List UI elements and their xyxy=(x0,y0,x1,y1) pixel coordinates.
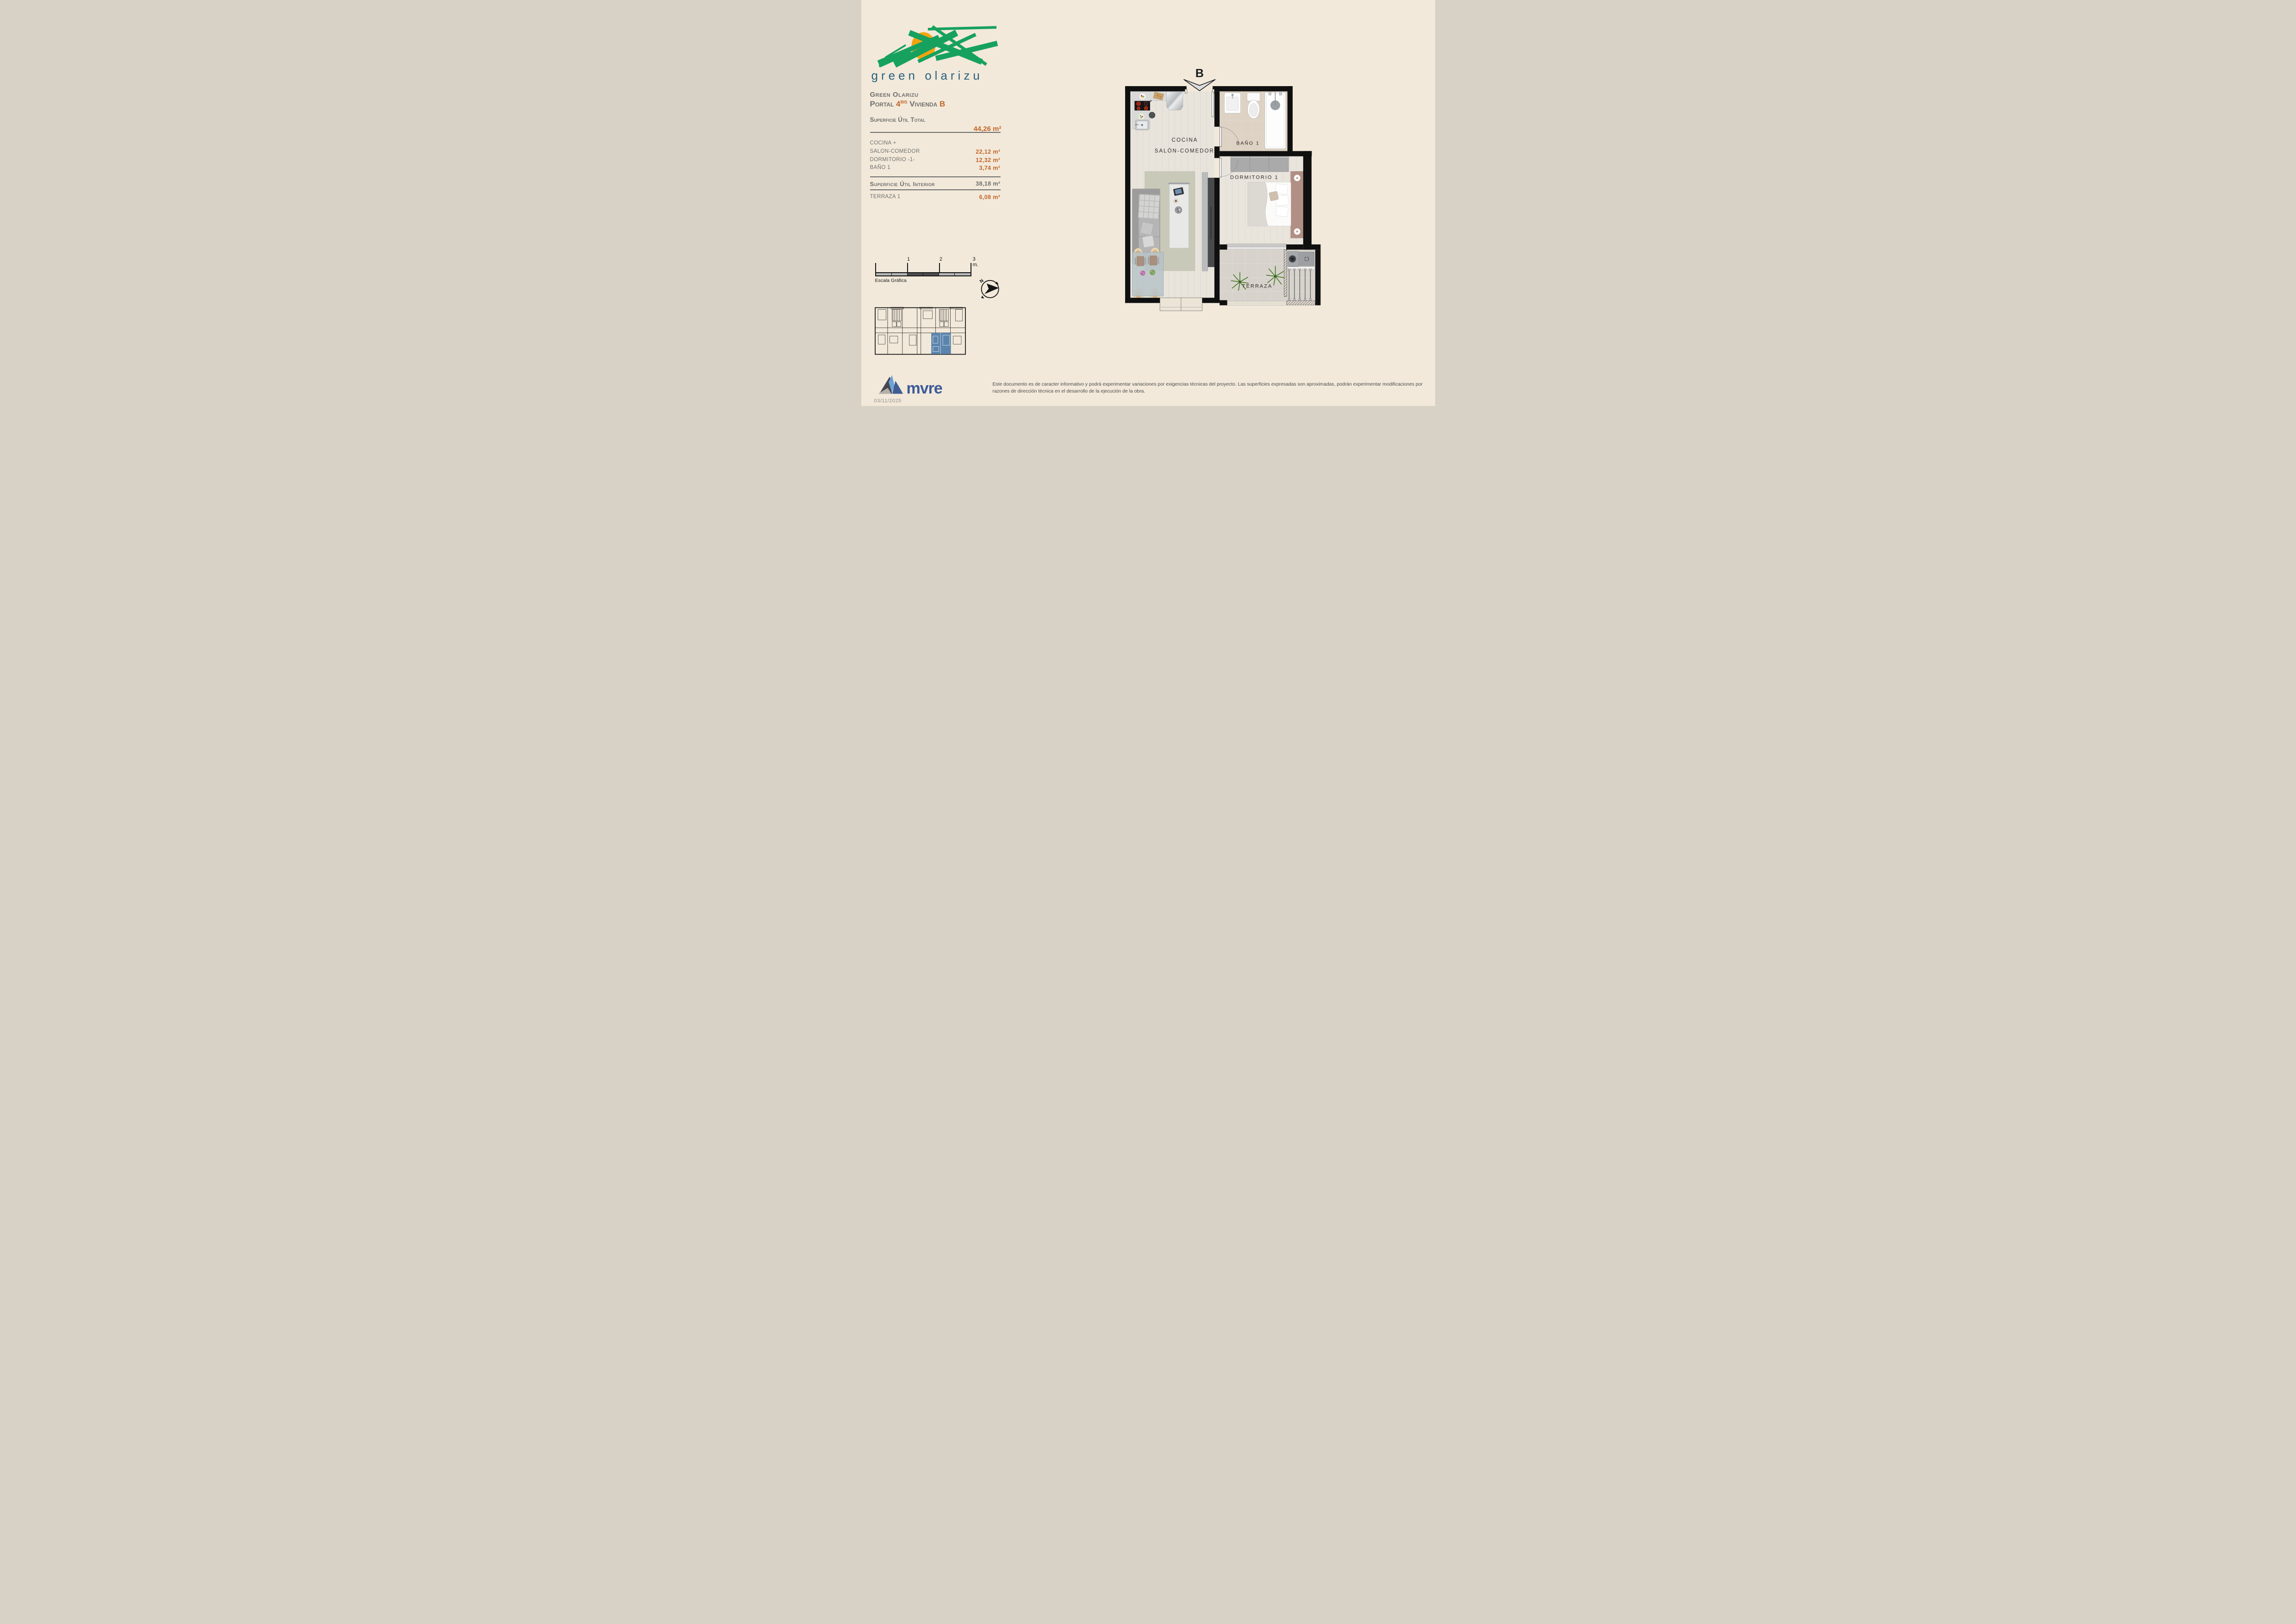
laundry-cabinet xyxy=(1299,252,1314,266)
entrance-label: B xyxy=(1195,68,1203,80)
divider xyxy=(870,189,1001,190)
green-olarizu-logo-icon xyxy=(870,19,1004,69)
entrance-marker: B xyxy=(1183,68,1215,91)
mvre-wordmark: mvre xyxy=(907,382,942,395)
label-cocina: COCINA xyxy=(1171,137,1198,143)
kitchen-column xyxy=(1149,112,1155,118)
divider xyxy=(870,176,1001,177)
fruit-plate xyxy=(1139,93,1145,100)
vivienda-label: Vivienda xyxy=(909,100,937,108)
pillow xyxy=(1276,206,1288,217)
area-row: DORMITORIO -1- 12,32 m² xyxy=(870,157,1001,163)
terrace-area-row: TERRAZA 1 6,08 m² xyxy=(870,194,1001,200)
scale-tick-3: 3 m. xyxy=(973,256,978,268)
sliding-door-sill xyxy=(1227,244,1286,247)
floorplan-sheet: green olarizu Green Olarizu Portal 4BIS … xyxy=(861,0,1435,406)
label-terraza: TERRAZA xyxy=(1242,283,1272,289)
disclaimer-text: Este documento es de caracter informativ… xyxy=(993,381,1428,395)
bathroom-door-leaf xyxy=(1220,127,1221,147)
deck-strip xyxy=(1287,300,1315,305)
key-plan xyxy=(875,307,966,356)
apartment-floorplan: B xyxy=(1125,68,1322,313)
mvre-logo: mvre xyxy=(878,374,942,395)
graphic-scale: 1 2 3 m. Escala Gráfica xyxy=(875,264,971,282)
area-row: BAÑO 1 3,74 m² xyxy=(870,165,1001,171)
bed-blanket xyxy=(1248,182,1268,226)
vivienda-value: B xyxy=(940,100,945,108)
scale-tick-1: 1 xyxy=(907,256,910,262)
total-area-label: Superficie Útil Total xyxy=(870,116,1002,123)
decor-bowl xyxy=(1175,206,1182,213)
food-plate xyxy=(1138,113,1145,120)
flower-bouquet xyxy=(1140,270,1145,275)
mvre-mountain-icon xyxy=(878,374,905,395)
area-row: SALON-COMEDOR 22,12 m² xyxy=(870,149,1001,155)
date-stamp: 03/11/2025 xyxy=(874,398,902,404)
entrance-door-leaf xyxy=(1212,92,1213,117)
entrance-arrow-icon xyxy=(1183,80,1215,91)
dining-set xyxy=(1132,248,1163,300)
project-title: Green Olarizu xyxy=(870,91,1002,99)
label-dormitorio: DORMITORIO 1 xyxy=(1230,175,1279,180)
sofa-pillow xyxy=(1140,222,1153,235)
portal-label: Portal xyxy=(870,100,894,108)
divider-wall xyxy=(1284,250,1287,296)
wardrobe xyxy=(1231,156,1288,172)
scale-bar-label: Escala Gráfica xyxy=(875,278,907,283)
plaid-blanket xyxy=(1138,194,1159,219)
scale-bar-icon xyxy=(875,272,971,276)
unit-title: Portal 4BIS Vivienda B xyxy=(870,100,1002,109)
sofa-pillow xyxy=(1142,236,1154,248)
pillow xyxy=(1269,191,1278,201)
tv-sideboard xyxy=(1202,172,1214,271)
dishwasher xyxy=(1166,92,1182,110)
coffee-table xyxy=(1168,182,1189,248)
flower-bouquet xyxy=(1150,269,1155,275)
scale-tick-2: 2 xyxy=(940,256,942,262)
headboard-panel xyxy=(1290,171,1303,238)
divider xyxy=(870,132,1001,133)
label-bano: BAÑO 1 xyxy=(1236,140,1260,146)
brand-wordmark: green olarizu xyxy=(871,69,983,83)
toilet-tank xyxy=(1247,93,1260,101)
interior-area-row: Superficie Útil Interior 38,18 m² xyxy=(870,181,1001,187)
portal-sup: BIS xyxy=(900,100,907,104)
label-salon: SALÓN-COMEDOR xyxy=(1154,148,1214,154)
bedroom-door-leaf xyxy=(1220,158,1221,177)
north-compass-icon: N xyxy=(976,274,1003,302)
salon-window-bay xyxy=(1160,298,1202,311)
area-row: COCINA + xyxy=(870,140,1001,146)
